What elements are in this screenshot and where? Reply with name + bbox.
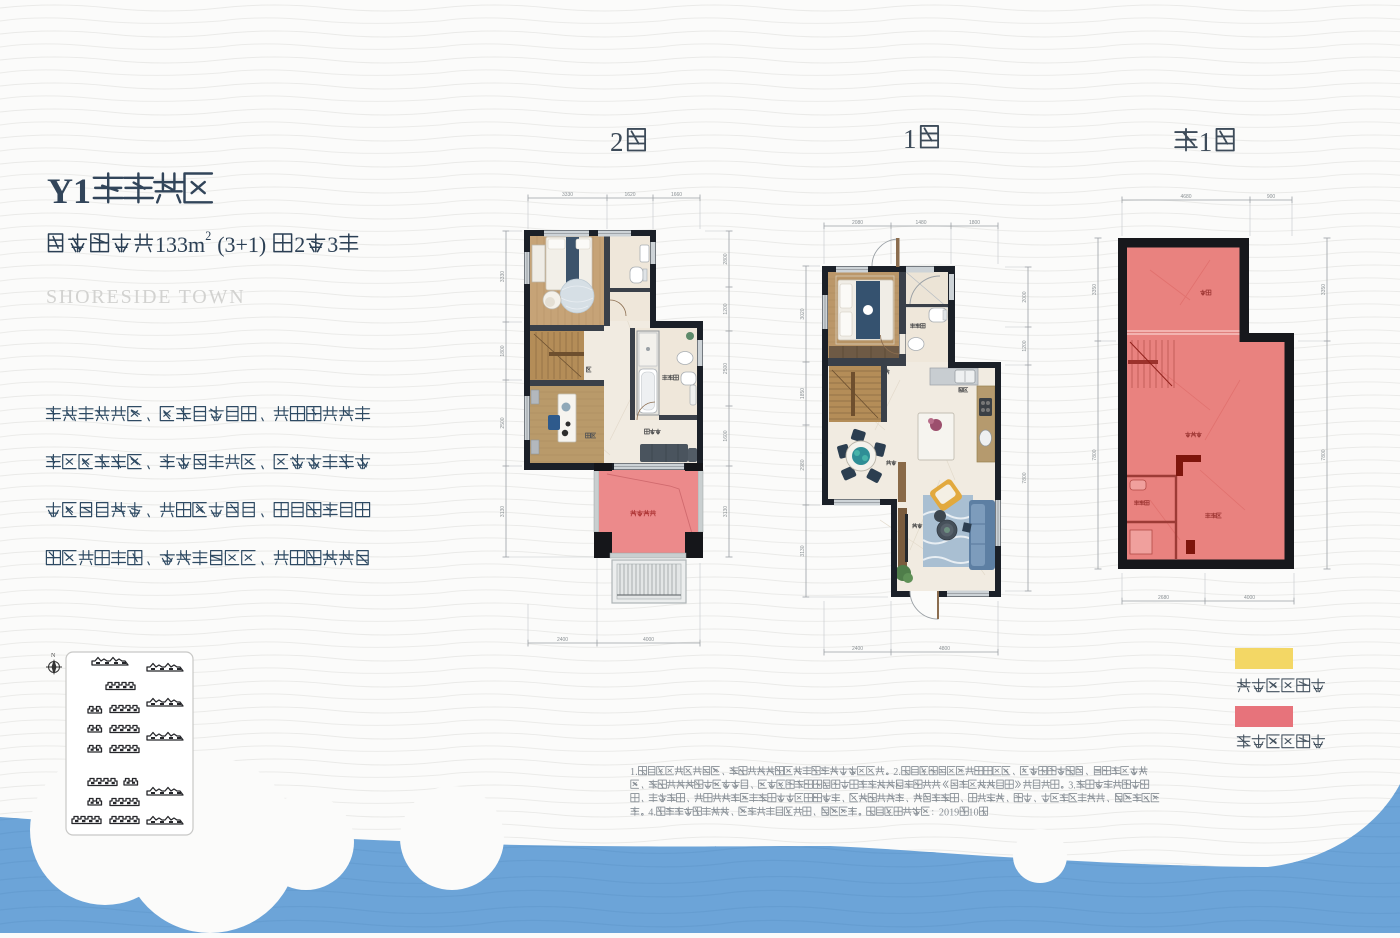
svg-text:2000: 2000 xyxy=(1022,291,1028,302)
svg-text:4680: 4680 xyxy=(1180,194,1191,200)
svg-text:(3+1): (3+1) xyxy=(217,232,266,257)
svg-text:3130: 3130 xyxy=(800,545,806,556)
svg-text:133m: 133m xyxy=(155,232,205,257)
svg-text:7800: 7800 xyxy=(1022,472,1028,483)
svg-text:1: 1 xyxy=(1199,127,1213,157)
svg-text:2500: 2500 xyxy=(723,363,729,374)
svg-text:N: N xyxy=(51,653,56,659)
svg-text:2680: 2680 xyxy=(1158,595,1169,601)
svg-text:1800: 1800 xyxy=(969,220,980,226)
svg-text:2.: 2. xyxy=(893,767,901,778)
svg-text:1200: 1200 xyxy=(1022,340,1028,351)
svg-text:SHORESIDE TOWN: SHORESIDE TOWN xyxy=(46,286,245,308)
svg-text:1: 1 xyxy=(903,124,917,154)
svg-text:2400: 2400 xyxy=(557,637,568,643)
svg-text:3330: 3330 xyxy=(500,271,506,282)
svg-text:2500: 2500 xyxy=(500,417,506,428)
svg-text:4000: 4000 xyxy=(643,637,654,643)
svg-text:3.: 3. xyxy=(1068,781,1076,792)
svg-text:2980: 2980 xyxy=(800,459,806,470)
svg-text:1.: 1. xyxy=(630,767,638,778)
svg-text:2080: 2080 xyxy=(852,220,863,226)
svg-text:4000: 4000 xyxy=(1244,595,1255,601)
svg-text:10: 10 xyxy=(968,808,978,819)
svg-text:1200: 1200 xyxy=(723,303,729,314)
svg-text:3350: 3350 xyxy=(1092,284,1098,295)
svg-text:3130: 3130 xyxy=(500,506,506,517)
svg-text:1480: 1480 xyxy=(915,220,926,226)
svg-text:3020: 3020 xyxy=(800,308,806,319)
svg-text:7800: 7800 xyxy=(1321,449,1327,460)
svg-text:4.: 4. xyxy=(648,808,656,819)
svg-text:2400: 2400 xyxy=(852,646,863,652)
svg-text:3350: 3350 xyxy=(1321,284,1327,295)
svg-text:4800: 4800 xyxy=(939,646,950,652)
svg-text:900: 900 xyxy=(1267,194,1276,200)
svg-text:1600: 1600 xyxy=(723,430,729,441)
svg-text:1800: 1800 xyxy=(500,345,506,356)
svg-text:2: 2 xyxy=(205,229,211,243)
svg-text:1660: 1660 xyxy=(671,192,682,198)
svg-text:Y1: Y1 xyxy=(47,171,91,211)
svg-text:3330: 3330 xyxy=(562,192,573,198)
svg-text:1850: 1850 xyxy=(800,388,806,399)
svg-text:1620: 1620 xyxy=(624,192,635,198)
svg-text:3: 3 xyxy=(327,232,338,257)
svg-text:2800: 2800 xyxy=(723,253,729,264)
svg-text:2: 2 xyxy=(610,127,624,157)
svg-text:3130: 3130 xyxy=(723,506,729,517)
svg-text:2019: 2019 xyxy=(939,808,959,819)
svg-text:7800: 7800 xyxy=(1092,449,1098,460)
svg-text:2: 2 xyxy=(294,232,305,257)
